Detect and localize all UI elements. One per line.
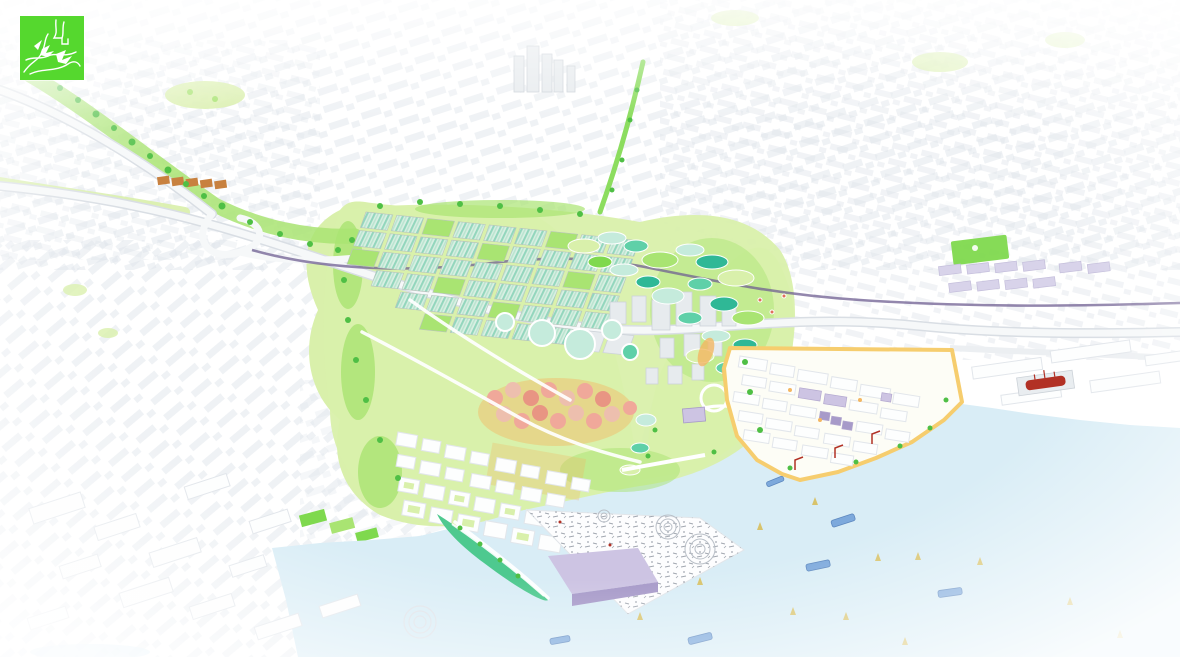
- masterplan-rendering: [0, 0, 1180, 657]
- top-fade: [0, 0, 1180, 120]
- masterplan-canvas: [0, 0, 1180, 657]
- logo-mark-icon: [20, 16, 84, 80]
- studio-logo: [20, 16, 84, 80]
